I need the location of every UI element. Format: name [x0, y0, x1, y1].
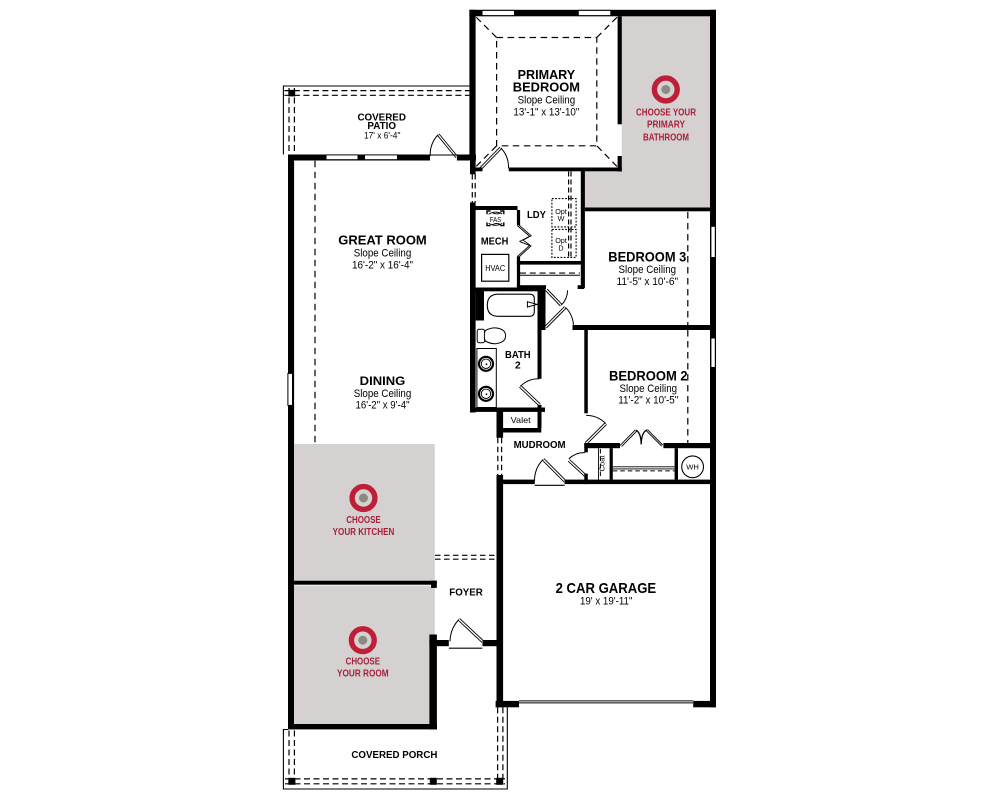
svg-text:BATHROOM: BATHROOM [643, 132, 689, 143]
svg-text:CHOOSE: CHOOSE [346, 657, 381, 668]
svg-text:W: W [558, 214, 565, 223]
svg-text:GREAT ROOM: GREAT ROOM [338, 232, 427, 247]
svg-text:CHOOSE YOUR: CHOOSE YOUR [636, 108, 697, 119]
svg-text:CHOOSE: CHOOSE [346, 515, 381, 526]
svg-text:17' x 6'-4": 17' x 6'-4" [364, 130, 401, 141]
svg-text:11'-5" x 10'-6": 11'-5" x 10'-6" [617, 276, 679, 288]
svg-text:DINING: DINING [360, 374, 406, 388]
svg-text:FOYER: FOYER [449, 588, 483, 599]
svg-text:D: D [558, 243, 563, 252]
svg-text:BATH: BATH [505, 350, 531, 361]
svg-text:PRIMARY: PRIMARY [647, 120, 685, 131]
svg-text:Valet: Valet [511, 415, 532, 425]
svg-text:13'-1" x 13'-10": 13'-1" x 13'-10" [513, 107, 579, 119]
svg-text:HVAC: HVAC [485, 263, 505, 273]
svg-text:MECH: MECH [481, 236, 509, 247]
svg-text:FAS: FAS [490, 215, 502, 224]
svg-text:Slope Ceiling: Slope Ceiling [354, 247, 412, 259]
svg-text:BEDROOM 3: BEDROOM 3 [608, 250, 686, 265]
svg-text:Slope Ceiling: Slope Ceiling [354, 388, 412, 400]
svg-text:Slope Ceiling: Slope Ceiling [620, 383, 678, 395]
svg-text:19' x 19'-11": 19' x 19'-11" [580, 596, 633, 608]
svg-text:11'-2" x 10'-5": 11'-2" x 10'-5" [618, 395, 678, 407]
svg-text:MUDROOM: MUDROOM [514, 440, 566, 451]
svg-text:WH: WH [686, 463, 699, 472]
svg-text:BEDROOM: BEDROOM [513, 80, 580, 95]
svg-text:Coat: Coat [598, 455, 607, 472]
svg-text:2: 2 [515, 361, 521, 372]
svg-text:BEDROOM 2: BEDROOM 2 [609, 369, 688, 384]
svg-text:Slope Ceiling: Slope Ceiling [619, 264, 677, 276]
svg-text:YOUR KITCHEN: YOUR KITCHEN [333, 527, 395, 538]
svg-text:16'-2" x 9'-4": 16'-2" x 9'-4" [356, 400, 410, 412]
svg-text:LDY: LDY [527, 210, 546, 221]
svg-text:YOUR ROOM: YOUR ROOM [337, 668, 389, 679]
svg-text:16'-2" x 16'-4": 16'-2" x 16'-4" [352, 260, 413, 272]
svg-text:Slope Ceiling: Slope Ceiling [518, 94, 576, 106]
svg-text:COVERED PORCH: COVERED PORCH [351, 750, 437, 761]
